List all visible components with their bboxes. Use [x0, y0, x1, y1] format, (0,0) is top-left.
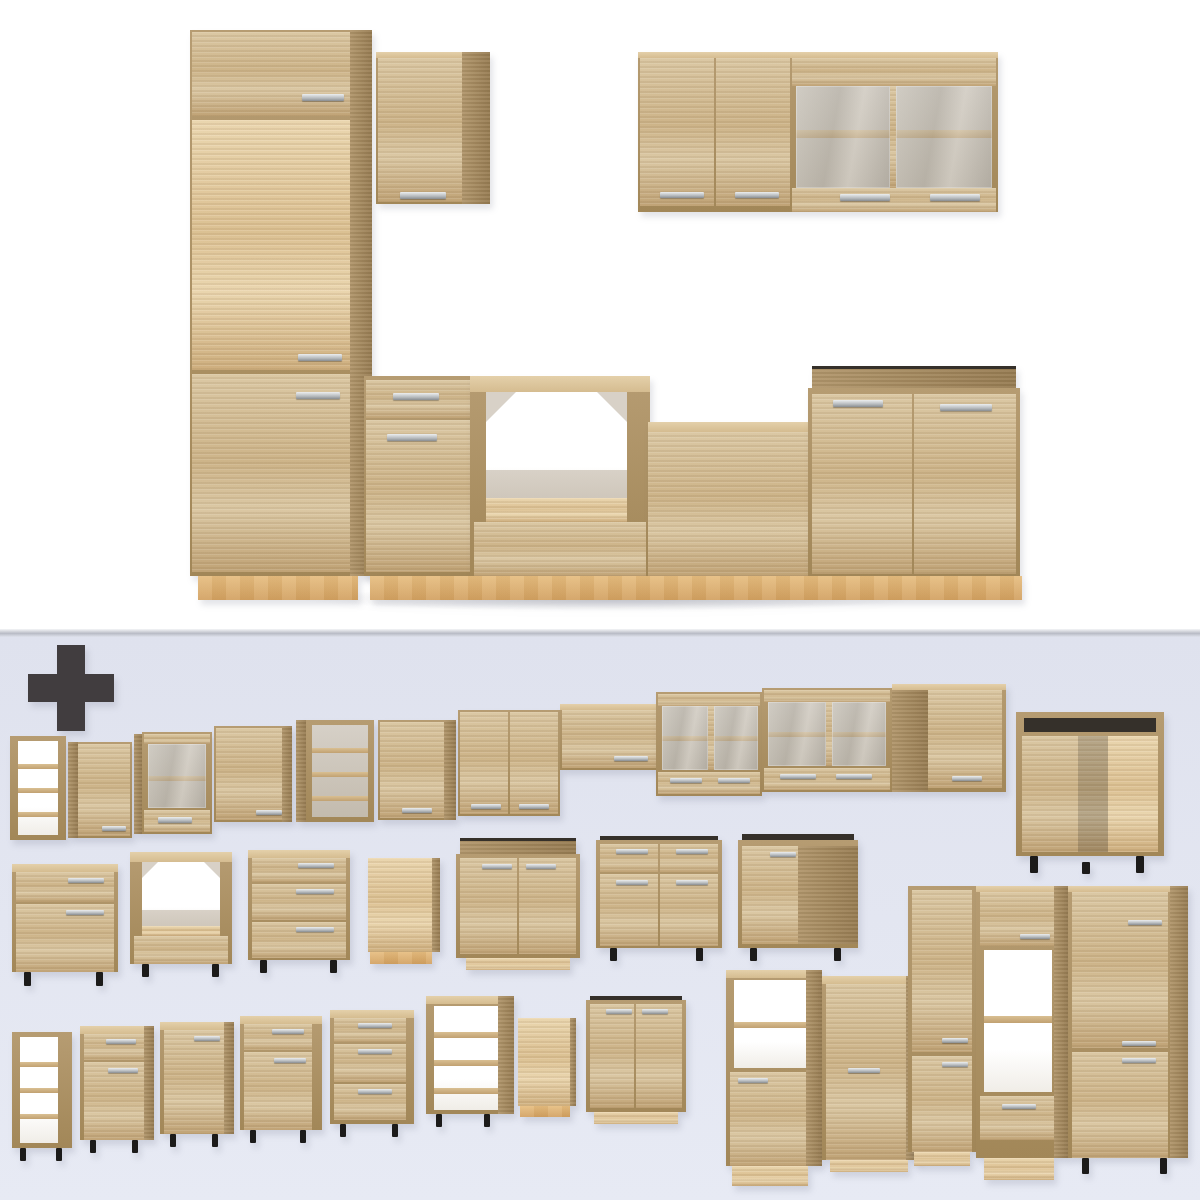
leg	[330, 960, 337, 973]
plinth	[520, 1106, 570, 1117]
oven-tower	[976, 886, 1068, 1182]
face	[192, 374, 350, 572]
glass	[148, 744, 206, 808]
leg	[24, 972, 31, 986]
leg	[1082, 862, 1090, 874]
plus-icon	[28, 645, 114, 731]
handle-icon	[942, 1038, 968, 1043]
face	[84, 1062, 144, 1140]
open	[434, 1006, 498, 1110]
leg	[300, 1130, 306, 1143]
shelf	[20, 1062, 58, 1067]
dishwasher-front-panel	[648, 422, 808, 576]
handle-icon	[930, 194, 980, 201]
shelf	[434, 1032, 498, 1038]
leg	[1082, 1158, 1089, 1174]
face	[742, 846, 798, 944]
handle-icon	[1002, 1104, 1036, 1109]
face	[84, 1034, 144, 1060]
face	[144, 734, 210, 744]
shelf	[18, 764, 58, 769]
face	[914, 1152, 970, 1166]
edge	[80, 1026, 154, 1034]
face	[980, 1096, 1054, 1140]
face	[474, 522, 646, 576]
side	[1170, 886, 1188, 1158]
leg	[142, 964, 149, 977]
base-3drawer-2	[330, 1010, 414, 1140]
shelf	[984, 1016, 1052, 1023]
wall-glass-2door-wide	[762, 688, 892, 792]
base-1door-narrow	[160, 1022, 234, 1150]
face	[134, 936, 228, 964]
face	[368, 858, 432, 952]
face	[1072, 892, 1168, 1048]
face	[1072, 1052, 1168, 1158]
wall-cabinet-1door-c	[378, 720, 456, 820]
glass	[796, 86, 890, 188]
handle-icon	[676, 849, 708, 854]
handle-icon	[735, 192, 779, 198]
base-2door-2drawer	[596, 836, 722, 962]
leg	[834, 948, 841, 961]
handle-icon	[526, 864, 556, 869]
handle-icon	[272, 1029, 304, 1034]
face	[192, 120, 350, 370]
wall-cabinet-group	[638, 52, 998, 214]
mid-tall-1door	[822, 976, 920, 1174]
face	[984, 1158, 1054, 1180]
handle-icon	[780, 774, 816, 779]
side	[144, 1026, 154, 1140]
face	[594, 1112, 678, 1124]
face	[244, 1024, 312, 1050]
handle-icon	[387, 434, 437, 441]
handle-icon	[102, 826, 126, 831]
handle-icon	[400, 192, 446, 199]
wine-rack-base	[12, 1032, 72, 1164]
sink-base-2door	[456, 838, 580, 970]
handle-icon	[833, 400, 883, 407]
face	[716, 58, 790, 206]
leg	[212, 964, 219, 977]
leg	[212, 1134, 218, 1147]
side	[432, 858, 440, 952]
handle-icon	[660, 192, 704, 198]
handle-icon	[952, 776, 982, 781]
face	[460, 858, 517, 954]
wall-cabinet-1door-b	[214, 726, 292, 822]
leg	[1136, 856, 1144, 873]
leg	[1160, 1158, 1167, 1174]
kitchen-cabinet-scene	[0, 0, 1200, 1200]
handle-icon	[108, 1068, 138, 1073]
face	[142, 926, 220, 936]
wall-open-shelf-narrow	[10, 736, 66, 840]
leg	[696, 948, 703, 961]
edge	[248, 850, 350, 858]
base-drawer-door-cabinet	[12, 864, 118, 986]
shelf	[18, 788, 58, 793]
face	[590, 1004, 634, 1108]
leg	[250, 1130, 256, 1143]
dark	[1024, 718, 1156, 732]
handle-icon	[296, 927, 334, 932]
handle-icon	[68, 878, 104, 883]
edge	[648, 422, 808, 432]
dark	[460, 838, 576, 841]
face	[640, 58, 714, 206]
face	[466, 958, 570, 970]
microwave-shelf-cabinet	[726, 970, 822, 1186]
handle-icon	[670, 778, 702, 783]
face	[1108, 736, 1158, 852]
handle-icon	[358, 1089, 392, 1094]
handle-icon	[606, 1009, 632, 1014]
edge	[130, 852, 232, 862]
face	[244, 1052, 312, 1130]
handle-icon	[274, 1058, 306, 1063]
face	[830, 1160, 908, 1172]
side	[134, 734, 142, 834]
face	[912, 1056, 972, 1152]
handle-icon	[642, 1009, 668, 1014]
handle-icon	[942, 1062, 968, 1067]
plinth	[198, 576, 358, 600]
handle-icon	[482, 864, 512, 869]
face	[1022, 736, 1078, 852]
wall-flap-cabinet	[560, 704, 658, 770]
handle-icon	[158, 817, 192, 823]
sink-base-cabinet	[808, 366, 1020, 576]
side-filler-panel	[368, 858, 440, 964]
leg	[20, 1148, 26, 1161]
face	[658, 772, 760, 794]
face	[812, 394, 912, 574]
wall-cabinet-1door-a	[68, 742, 132, 838]
handle-icon	[614, 756, 648, 761]
handle-icon	[738, 1078, 768, 1083]
leg	[392, 1124, 398, 1137]
side	[68, 742, 78, 838]
handle-icon	[848, 1068, 880, 1073]
face	[510, 712, 558, 814]
shelf	[434, 1088, 498, 1094]
leg	[750, 948, 757, 961]
face	[914, 394, 1016, 574]
side	[462, 52, 490, 204]
handle-icon	[616, 849, 648, 854]
wall-glass-2door	[656, 692, 762, 796]
face	[730, 1072, 806, 1166]
handle-icon	[296, 392, 340, 399]
handle-icon	[1020, 934, 1050, 939]
handle-icon	[1122, 1058, 1156, 1063]
corner-base-cabinet-L	[1016, 712, 1168, 874]
corner-base-1door	[738, 834, 858, 964]
plus-icon-bar	[28, 674, 114, 702]
face	[16, 872, 114, 902]
wall-corner-cabinet	[892, 684, 1006, 792]
handle-icon	[1128, 920, 1162, 925]
oven-housing-base	[130, 852, 232, 978]
handle-icon	[296, 889, 334, 894]
oven-housing-cabinet	[470, 376, 650, 576]
handle-icon	[616, 880, 648, 885]
handle-icon	[393, 393, 439, 400]
side	[444, 720, 456, 820]
glass	[662, 706, 708, 770]
leg	[56, 1148, 62, 1161]
handle-icon	[676, 880, 708, 885]
side	[892, 690, 928, 792]
side	[806, 970, 822, 1166]
leg	[170, 1134, 176, 1147]
leg	[260, 960, 267, 973]
front-panel	[518, 1018, 576, 1120]
strip	[142, 910, 220, 926]
wall-cabinet-glass-1door	[134, 732, 212, 834]
edge	[12, 864, 118, 872]
plinth-strip	[370, 576, 1022, 600]
side	[498, 996, 514, 1114]
leg	[132, 1140, 138, 1153]
handle-icon	[358, 1049, 392, 1054]
handle-icon	[194, 1036, 220, 1041]
wall-open-shelf-unit	[296, 720, 374, 822]
handle-icon	[302, 94, 344, 101]
handle-icon	[66, 910, 104, 915]
base-drawer-door-2	[240, 1016, 322, 1146]
leg	[96, 972, 103, 986]
face	[78, 744, 130, 836]
strip	[486, 470, 627, 498]
edge	[470, 376, 650, 392]
edge	[240, 1016, 322, 1024]
base-drawer-door-narrow	[80, 1026, 154, 1156]
plinth	[370, 952, 432, 964]
glass	[768, 702, 826, 766]
face	[912, 890, 972, 1052]
shelf	[312, 772, 368, 777]
face	[378, 58, 462, 202]
face	[192, 32, 350, 116]
face	[732, 1166, 808, 1186]
side	[798, 846, 858, 944]
base-cabinet-drawer-door	[364, 376, 474, 576]
face	[1078, 736, 1108, 852]
handle-icon	[106, 1039, 136, 1044]
handle-icon	[940, 404, 992, 411]
handle-icon	[840, 194, 890, 201]
base-2door	[586, 996, 686, 1126]
leg	[90, 1140, 96, 1153]
face	[519, 858, 576, 954]
face	[252, 858, 346, 882]
handle-icon	[256, 810, 282, 815]
dark	[812, 366, 1016, 369]
leg	[484, 1114, 490, 1127]
handle-icon	[519, 804, 549, 809]
face	[380, 722, 444, 818]
edge	[160, 1022, 234, 1030]
handle-icon	[1122, 1041, 1156, 1046]
handle-icon	[471, 804, 501, 809]
side	[1054, 886, 1068, 1158]
face	[486, 498, 627, 522]
face	[334, 1018, 406, 1042]
leg	[340, 1124, 346, 1137]
face	[460, 712, 508, 814]
face	[366, 420, 470, 572]
edge	[330, 1010, 414, 1018]
face	[764, 768, 890, 790]
face	[518, 1018, 570, 1106]
handle-icon	[718, 778, 750, 783]
glass	[832, 702, 886, 766]
glass	[714, 706, 758, 770]
shelf	[20, 1114, 58, 1119]
handle-icon	[770, 852, 796, 857]
face	[216, 728, 282, 820]
base-open-shelf	[426, 996, 514, 1130]
face	[658, 694, 760, 706]
base-3drawer-cabinet	[248, 850, 350, 972]
plinth	[370, 576, 1022, 600]
wall-cabinet-2door	[458, 710, 560, 816]
handle-icon	[402, 808, 432, 813]
handle-icon	[358, 1023, 392, 1028]
tall-2door-cabinet	[908, 886, 976, 1166]
face	[792, 58, 996, 86]
side	[570, 1018, 576, 1106]
tall-cabinet	[190, 30, 372, 600]
side	[296, 720, 306, 822]
shelf	[734, 1022, 806, 1028]
face	[928, 690, 1002, 788]
shelf	[20, 1088, 58, 1093]
face	[764, 690, 890, 702]
side	[282, 726, 292, 822]
shelf	[312, 748, 368, 753]
side	[224, 1022, 234, 1134]
shelf	[312, 796, 368, 801]
shelf	[18, 812, 58, 817]
face	[648, 432, 808, 576]
side	[812, 366, 1016, 390]
leg	[610, 948, 617, 961]
glass	[896, 86, 992, 188]
handle-icon	[836, 774, 872, 779]
product-image-canvas	[0, 0, 1200, 1200]
face	[164, 1030, 224, 1134]
face	[636, 1004, 682, 1108]
handle-icon	[298, 354, 342, 361]
leg	[436, 1114, 442, 1127]
shelf	[434, 1060, 498, 1066]
handle-icon	[298, 863, 334, 868]
wall-cabinet-left	[376, 52, 490, 216]
leg	[1030, 856, 1038, 873]
open	[312, 725, 368, 817]
fridge-tall-cabinet	[1068, 886, 1188, 1184]
